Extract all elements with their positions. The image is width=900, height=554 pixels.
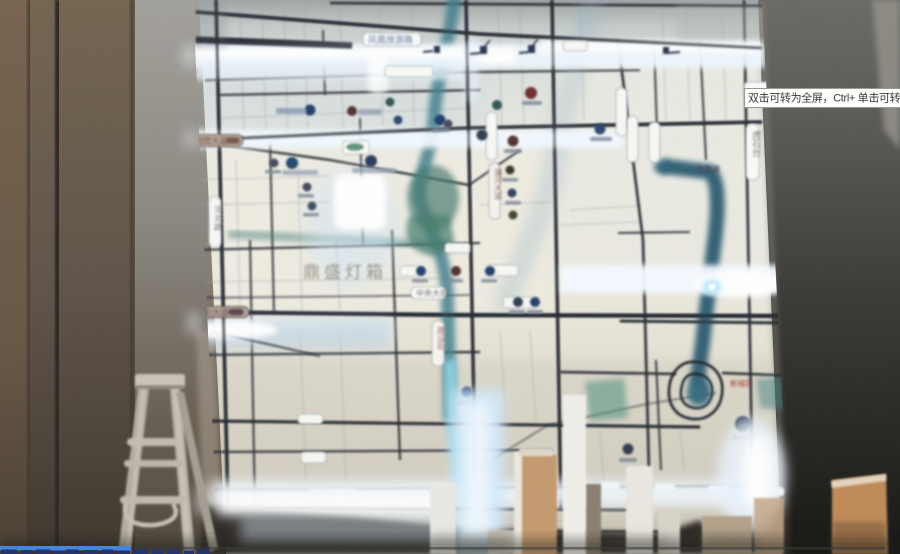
svg-text:双击可转为全屏，Ctrl+ 单击可转为: 双击可转为全屏，Ctrl+ 单击可转为	[748, 91, 900, 105]
